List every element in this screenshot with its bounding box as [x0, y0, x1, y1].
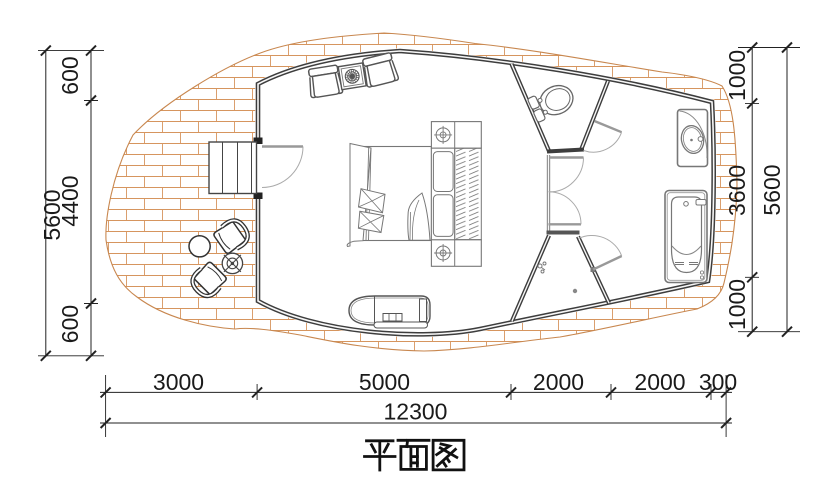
svg-text:2000: 2000 — [634, 369, 685, 395]
svg-text:1000: 1000 — [724, 50, 750, 101]
svg-text:12300: 12300 — [384, 399, 448, 425]
svg-text:300: 300 — [699, 369, 737, 395]
svg-text:5600: 5600 — [759, 164, 785, 215]
svg-text:5600: 5600 — [39, 189, 65, 240]
svg-text:5000: 5000 — [359, 369, 410, 395]
svg-text:600: 600 — [57, 56, 83, 94]
svg-text:2000: 2000 — [533, 369, 584, 395]
svg-text:1000: 1000 — [724, 279, 750, 330]
svg-text:3000: 3000 — [153, 369, 204, 395]
svg-text:600: 600 — [57, 305, 83, 343]
svg-text:3600: 3600 — [724, 165, 750, 216]
